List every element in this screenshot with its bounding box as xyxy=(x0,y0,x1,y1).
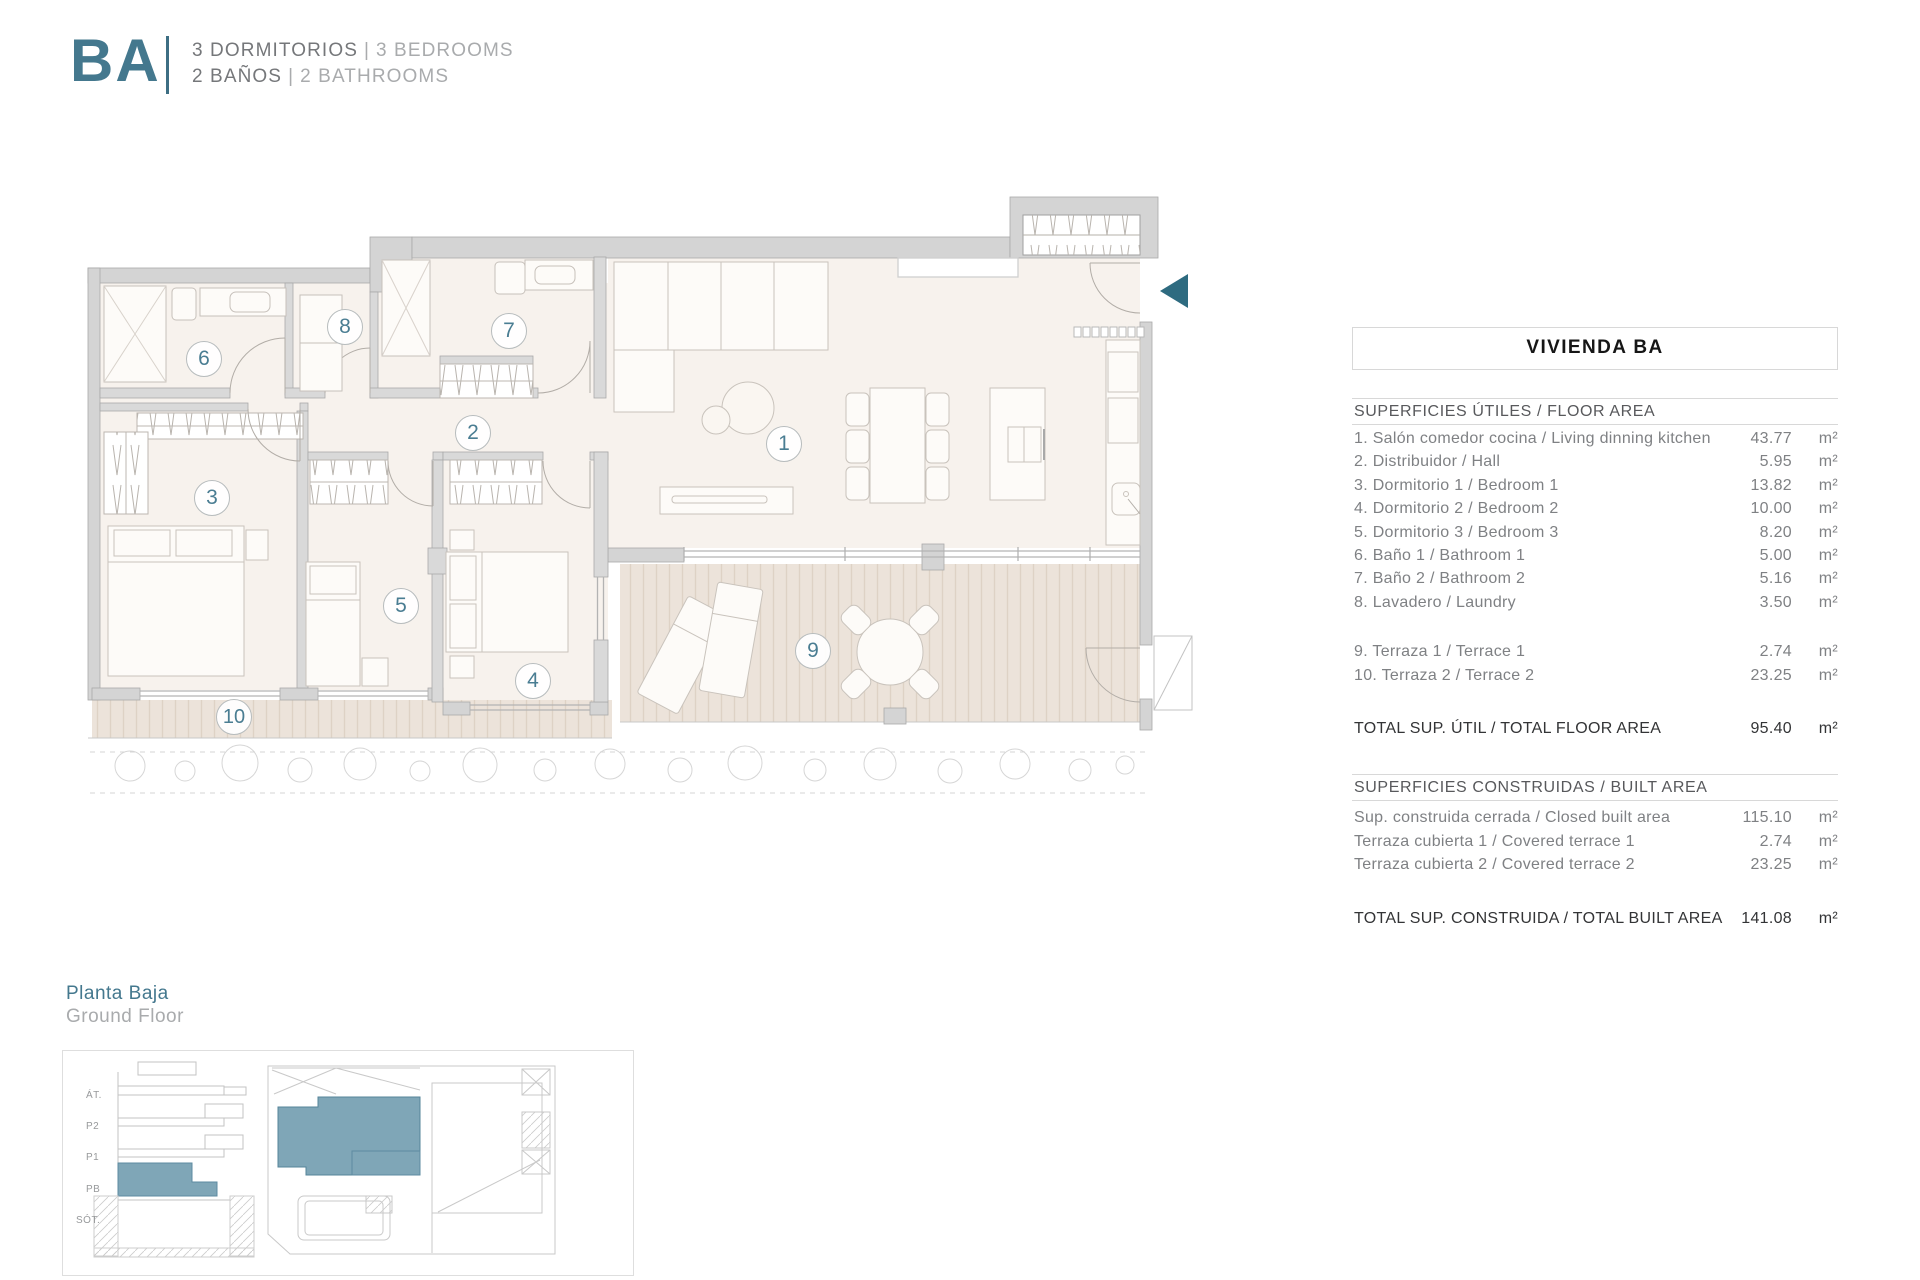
table-row: 1. Salón comedor cocina / Living dinning… xyxy=(1352,427,1838,450)
terrace-rows: 9. Terraza 1 / Terrace 12.74m² 10. Terra… xyxy=(1352,638,1838,687)
floor-label: Planta Baja Ground Floor xyxy=(66,982,184,1028)
bathrooms-line: 2 BAÑOS|2 BATHROOMS xyxy=(192,64,514,90)
header-divider xyxy=(166,36,169,94)
section-level-atico: ÁT. xyxy=(86,1090,102,1101)
floor-area-rows: 1. Salón comedor cocina / Living dinning… xyxy=(1352,425,1838,614)
table-row: 2. Distribuidor / Hall5.95m² xyxy=(1352,450,1838,473)
table-row: 6. Baño 1 / Bathroom 15.00m² xyxy=(1352,544,1838,567)
room-label-terrace2: 10 xyxy=(216,699,252,735)
room-label-bedroom3: 5 xyxy=(383,588,419,624)
area-table: VIVIENDA BA SUPERFICIES ÚTILES / FLOOR A… xyxy=(1352,327,1838,930)
entry-louver xyxy=(1023,215,1140,255)
built-area-rows: Sup. construida cerrada / Closed built a… xyxy=(1352,801,1838,876)
table-row: 3. Dormitorio 1 / Bedroom 113.82m² xyxy=(1352,474,1838,497)
room-label-terrace1: 9 xyxy=(795,633,831,669)
table-row: Terraza cubierta 2 / Covered terrace 223… xyxy=(1352,853,1838,876)
table-row: 5. Dormitorio 3 / Bedroom 38.20m² xyxy=(1352,521,1838,544)
floor-area-header: SUPERFICIES ÚTILES / FLOOR AREA xyxy=(1352,398,1838,425)
table-row: Terraza cubierta 1 / Covered terrace 12.… xyxy=(1352,830,1838,853)
section-level-pb: PB xyxy=(86,1184,100,1195)
garden-plants xyxy=(115,745,1134,783)
terrace-side-exit xyxy=(1154,636,1192,710)
section-level-sotano: SÓT. xyxy=(76,1215,100,1226)
total-floor-area-row: TOTAL SUP. ÚTIL / TOTAL FLOOR AREA95.40m… xyxy=(1352,717,1838,740)
room-label-laundry: 8 xyxy=(327,309,363,345)
table-row: 9. Terraza 1 / Terrace 12.74m² xyxy=(1352,640,1838,663)
room-label-hall: 2 xyxy=(455,415,491,451)
entrance-arrow-icon xyxy=(1160,274,1188,308)
table-row: Sup. construida cerrada / Closed built a… xyxy=(1352,806,1838,829)
room-label-bedroom1: 3 xyxy=(194,480,230,516)
room-label-living: 1 xyxy=(766,426,802,462)
total-built-area-row: TOTAL SUP. CONSTRUIDA / TOTAL BUILT AREA… xyxy=(1352,907,1838,930)
table-row: 7. Baño 2 / Bathroom 25.16m² xyxy=(1352,567,1838,590)
floor-label-es: Planta Baja xyxy=(66,982,184,1005)
room-label-bathroom2: 7 xyxy=(491,313,527,349)
room-label-bathroom1: 6 xyxy=(186,341,222,377)
table-row: 4. Dormitorio 2 / Bedroom 210.00m² xyxy=(1352,497,1838,520)
table-title: VIVIENDA BA xyxy=(1352,327,1838,370)
location-diagram-box xyxy=(62,1050,634,1276)
floor-label-en: Ground Floor xyxy=(66,1005,184,1028)
room-label-bedroom2: 4 xyxy=(515,663,551,699)
header-subtitle: 3 DORMITORIOS|3 BEDROOMS 2 BAÑOS|2 BATHR… xyxy=(192,38,514,90)
unit-code: BA xyxy=(70,26,161,95)
section-level-p1: P1 xyxy=(86,1152,99,1163)
section-level-p2: P2 xyxy=(86,1121,99,1132)
table-row: 8. Lavadero / Laundry3.50m² xyxy=(1352,591,1838,614)
table-row: 10. Terraza 2 / Terrace 223.25m² xyxy=(1352,664,1838,687)
bedrooms-line: 3 DORMITORIOS|3 BEDROOMS xyxy=(192,38,514,64)
built-area-header: SUPERFICIES CONSTRUIDAS / BUILT AREA xyxy=(1352,774,1838,801)
